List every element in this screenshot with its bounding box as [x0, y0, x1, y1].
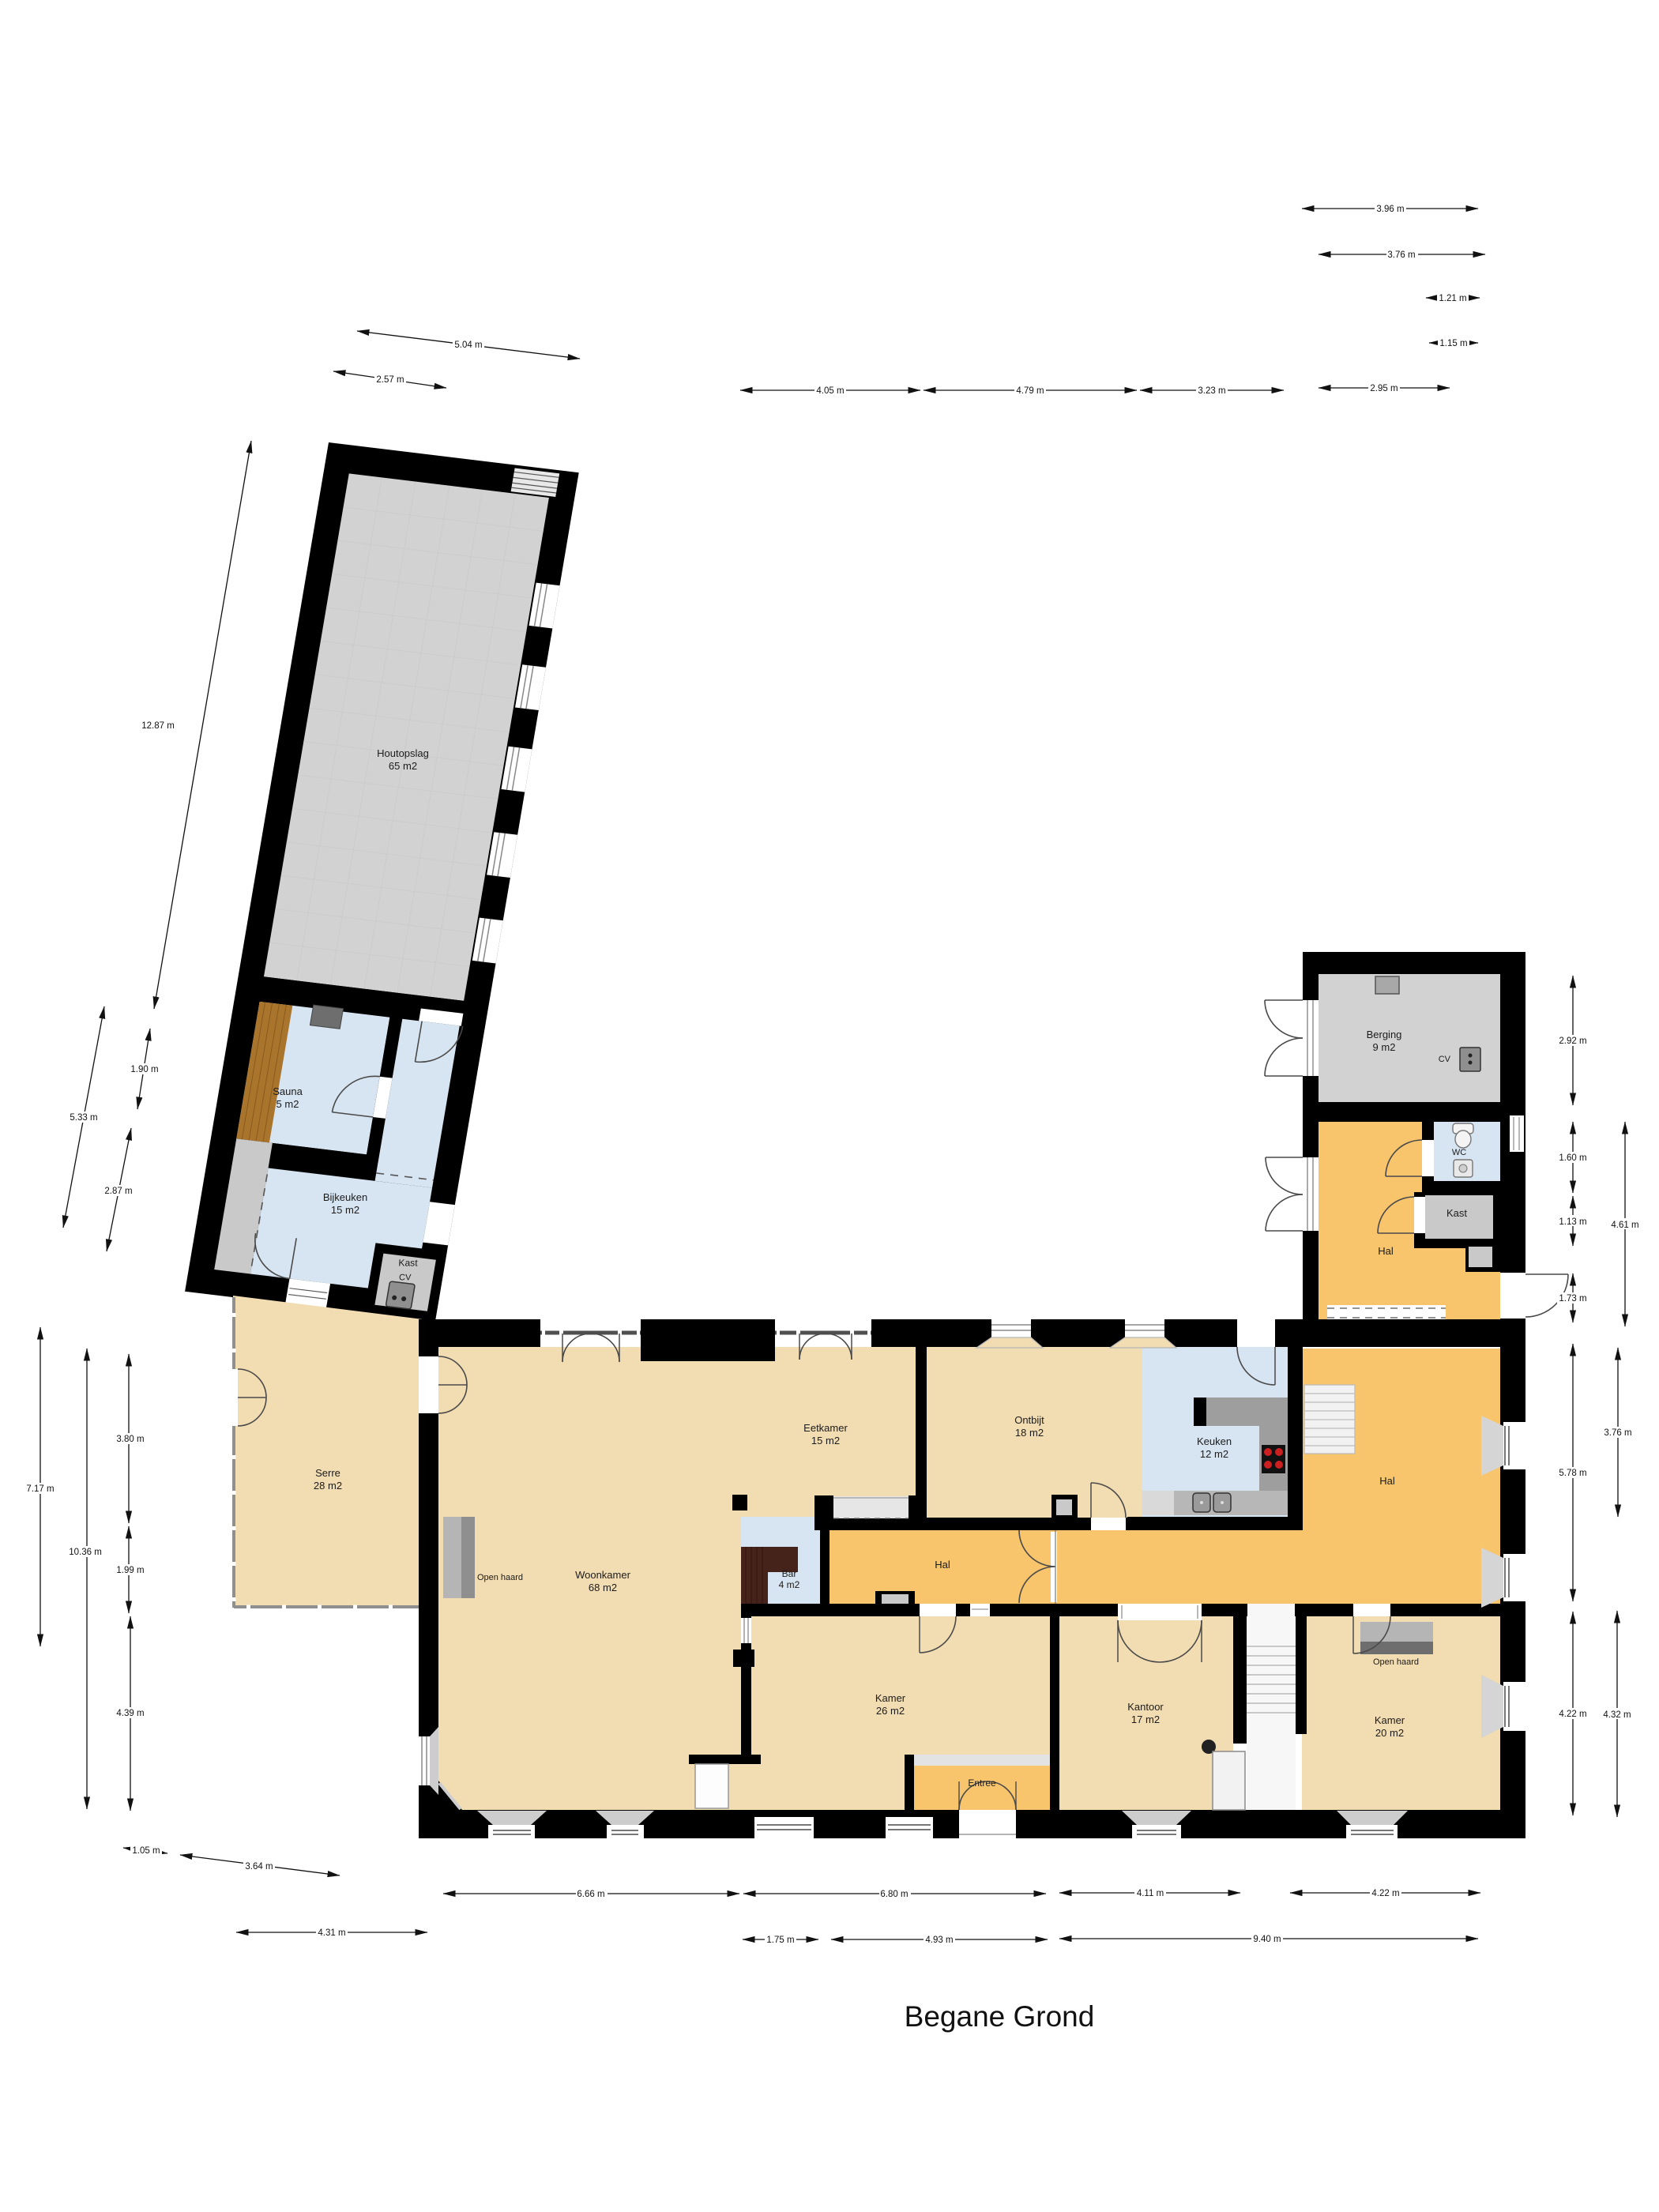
svg-text:28 m2: 28 m2 [314, 1480, 342, 1492]
svg-text:CV: CV [399, 1273, 412, 1282]
svg-text:4.93 m: 4.93 m [925, 1935, 953, 1945]
svg-text:Hal: Hal [1379, 1475, 1395, 1487]
svg-text:1.05 m: 1.05 m [132, 1846, 160, 1856]
svg-text:Kast: Kast [1446, 1207, 1467, 1219]
svg-text:4.05 m: 4.05 m [816, 386, 844, 396]
svg-text:1.60 m: 1.60 m [1559, 1153, 1586, 1163]
svg-text:Sauna: Sauna [273, 1085, 303, 1097]
svg-text:Entree: Entree [968, 1777, 996, 1789]
svg-text:Kamer: Kamer [1375, 1714, 1405, 1726]
svg-text:4.61 m: 4.61 m [1611, 1221, 1638, 1230]
svg-text:Hal: Hal [1378, 1245, 1394, 1257]
svg-text:1.90 m: 1.90 m [130, 1065, 158, 1074]
svg-text:3.80 m: 3.80 m [116, 1435, 144, 1444]
svg-text:2.92 m: 2.92 m [1559, 1036, 1586, 1046]
svg-text:1.13 m: 1.13 m [1559, 1217, 1586, 1227]
svg-text:4.32 m: 4.32 m [1603, 1710, 1631, 1720]
svg-text:Bijkeuken: Bijkeuken [323, 1191, 367, 1203]
svg-text:4.31 m: 4.31 m [318, 1928, 345, 1938]
svg-text:2.95 m: 2.95 m [1370, 384, 1398, 393]
svg-text:5 m2: 5 m2 [276, 1098, 299, 1110]
svg-text:Begane Grond: Begane Grond [905, 2000, 1095, 2033]
svg-text:6.80 m: 6.80 m [880, 1890, 908, 1899]
svg-text:7.17 m: 7.17 m [26, 1484, 54, 1494]
svg-text:3.76 m: 3.76 m [1387, 250, 1415, 260]
svg-text:Open haard: Open haard [1373, 1657, 1419, 1667]
svg-text:1.75 m: 1.75 m [766, 1935, 794, 1945]
svg-text:4 m2: 4 m2 [779, 1579, 800, 1590]
svg-text:Houtopslag: Houtopslag [377, 747, 429, 759]
svg-text:Bar: Bar [782, 1568, 797, 1579]
svg-text:Kantoor: Kantoor [1127, 1701, 1164, 1713]
svg-text:20 m2: 20 m2 [1375, 1727, 1404, 1739]
svg-text:3.64 m: 3.64 m [245, 1862, 273, 1872]
svg-text:2.87 m: 2.87 m [104, 1187, 132, 1196]
svg-text:10.36 m: 10.36 m [69, 1548, 102, 1557]
svg-text:68 m2: 68 m2 [589, 1582, 617, 1593]
svg-text:26 m2: 26 m2 [876, 1705, 905, 1717]
svg-text:Serre: Serre [315, 1467, 340, 1479]
svg-text:Keuken: Keuken [1197, 1435, 1232, 1447]
svg-text:5.04 m: 5.04 m [454, 340, 482, 350]
svg-text:4.79 m: 4.79 m [1016, 386, 1044, 396]
svg-text:5.78 m: 5.78 m [1559, 1469, 1586, 1478]
svg-text:4.39 m: 4.39 m [116, 1709, 144, 1718]
svg-text:15 m2: 15 m2 [331, 1204, 359, 1216]
svg-text:1.21 m: 1.21 m [1439, 294, 1466, 303]
svg-text:3.96 m: 3.96 m [1376, 205, 1404, 214]
svg-text:WC: WC [1452, 1148, 1466, 1157]
svg-text:Open haard: Open haard [477, 1573, 523, 1582]
svg-text:6.66 m: 6.66 m [577, 1890, 604, 1899]
svg-text:CV: CV [1439, 1055, 1451, 1064]
svg-text:9 m2: 9 m2 [1373, 1041, 1396, 1053]
svg-text:4.22 m: 4.22 m [1371, 1889, 1399, 1898]
svg-text:3.23 m: 3.23 m [1198, 386, 1225, 396]
svg-text:Kamer: Kamer [875, 1692, 906, 1704]
svg-text:9.40 m: 9.40 m [1253, 1935, 1281, 1944]
svg-text:17 m2: 17 m2 [1131, 1714, 1160, 1725]
svg-text:Eetkamer: Eetkamer [803, 1422, 848, 1434]
svg-text:18 m2: 18 m2 [1015, 1427, 1044, 1439]
svg-text:65 m2: 65 m2 [389, 760, 417, 772]
svg-text:Woonkamer: Woonkamer [575, 1569, 631, 1581]
svg-text:Kast: Kast [398, 1258, 418, 1269]
svg-text:12 m2: 12 m2 [1200, 1448, 1228, 1460]
svg-text:12.87 m: 12.87 m [141, 721, 175, 731]
svg-text:1.99 m: 1.99 m [116, 1566, 144, 1575]
svg-text:Hal: Hal [935, 1559, 950, 1571]
svg-text:Berging: Berging [1367, 1029, 1402, 1040]
svg-text:4.22 m: 4.22 m [1559, 1710, 1586, 1719]
svg-text:3.76 m: 3.76 m [1604, 1428, 1631, 1438]
svg-text:5.33 m: 5.33 m [70, 1113, 97, 1123]
svg-text:1.73 m: 1.73 m [1559, 1294, 1586, 1303]
svg-text:Ontbijt: Ontbijt [1014, 1414, 1044, 1426]
svg-text:4.11 m: 4.11 m [1137, 1889, 1164, 1898]
svg-text:15 m2: 15 m2 [811, 1435, 840, 1446]
svg-text:1.15 m: 1.15 m [1439, 339, 1467, 348]
svg-text:2.57 m: 2.57 m [376, 375, 404, 385]
